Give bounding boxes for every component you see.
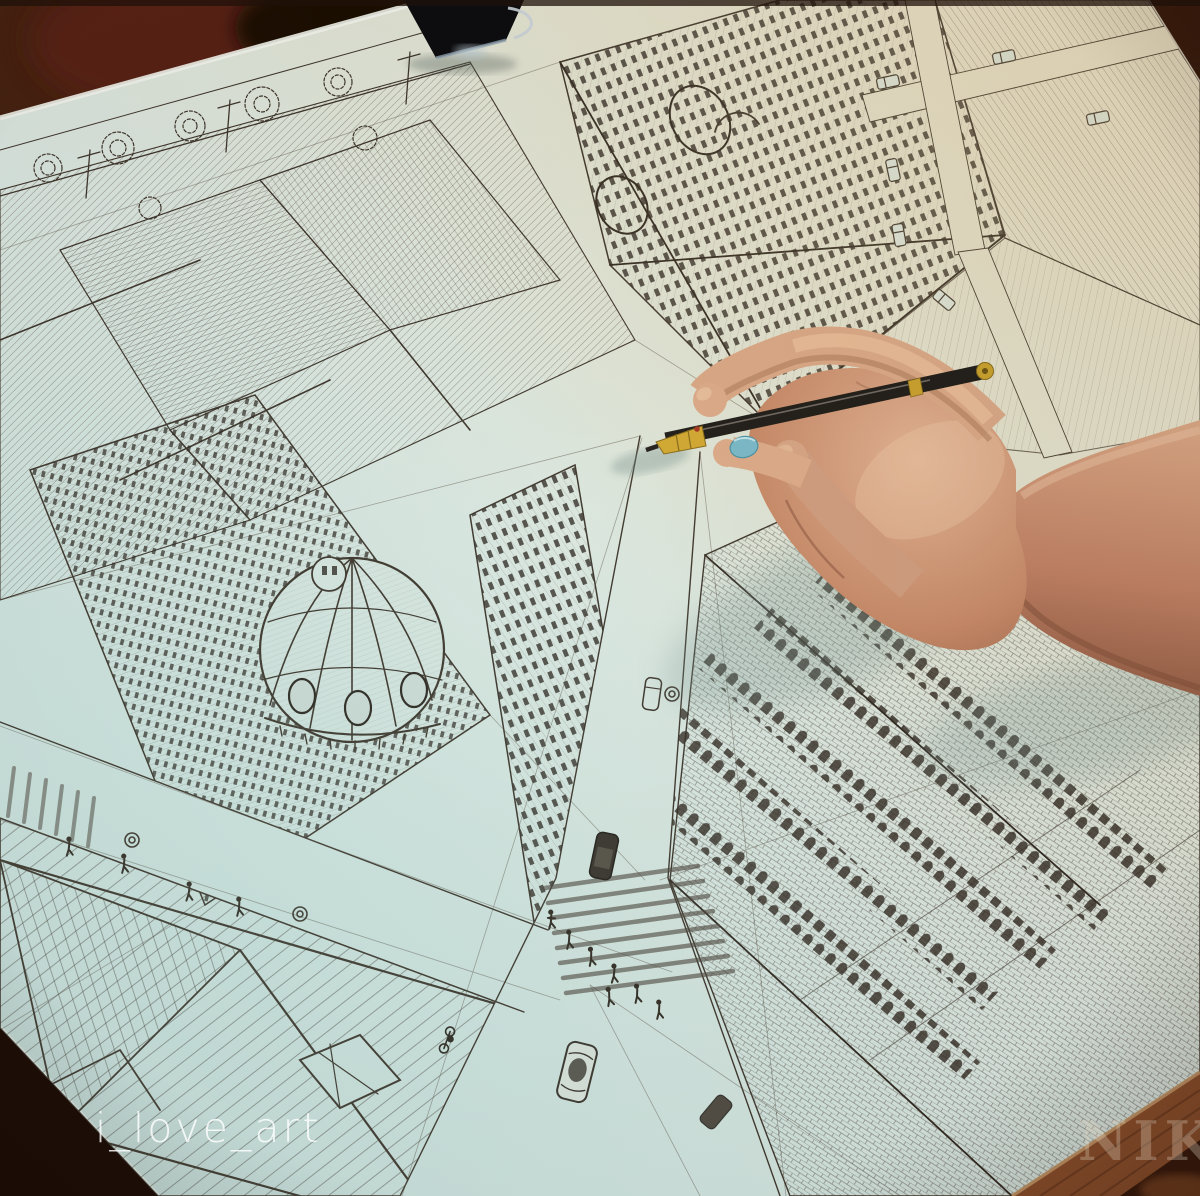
watermark-corner: NIK <box>1078 1109 1200 1173</box>
vignette <box>0 0 1200 1196</box>
watermark-artist-handle: i_love_art <box>95 1104 321 1152</box>
photo-of-hand-drawing-cityscape: i_love_art NIK <box>0 0 1200 1196</box>
